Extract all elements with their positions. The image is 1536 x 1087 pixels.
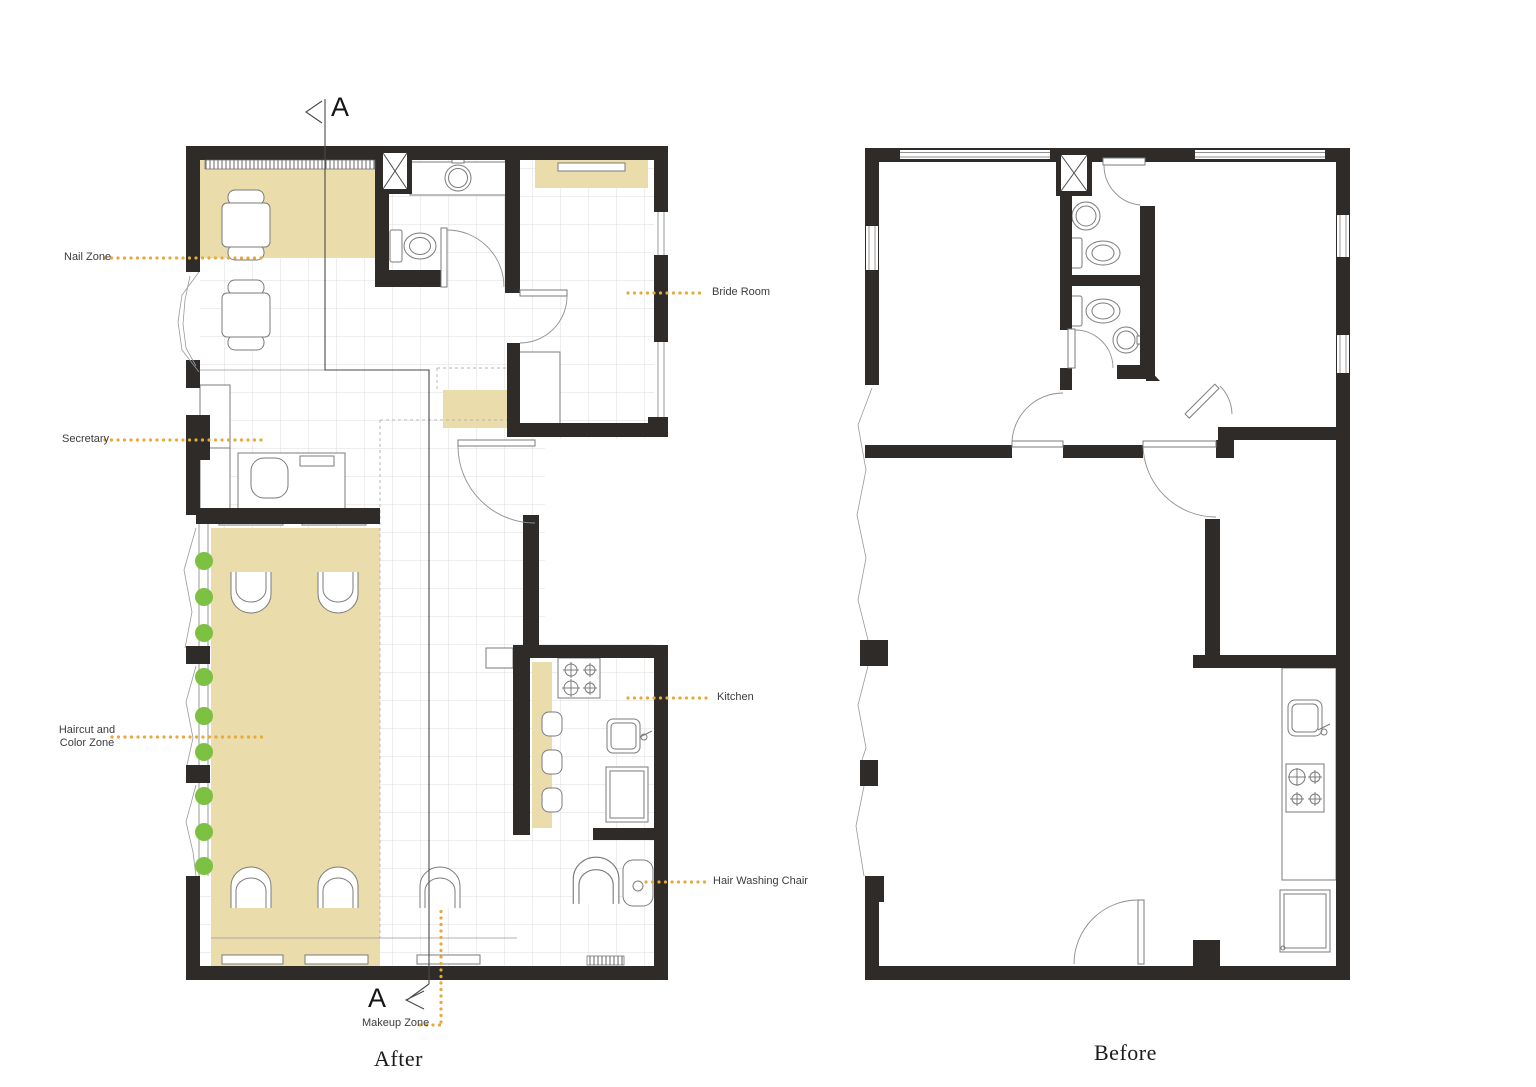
nail-table-1 [222, 190, 270, 260]
salon-chair [318, 867, 358, 908]
before-walls [860, 148, 1350, 980]
after-floor-plan [105, 99, 712, 1025]
before-sink-2 [1113, 327, 1143, 353]
before-stove [1286, 764, 1324, 812]
label-makeup-zone: Makeup Zone [362, 1017, 429, 1030]
salon-chair [318, 572, 358, 613]
salon-chair [231, 572, 271, 613]
section-marker-a-bottom: A [368, 983, 386, 1014]
bottom-entry-door [1074, 900, 1144, 964]
before-toilet-2 [1068, 296, 1120, 326]
section-marker-a-top: A [331, 92, 349, 123]
after-title: After [374, 1046, 423, 1072]
left-room-door [1012, 393, 1063, 447]
label-secretary: Secretary [62, 433, 109, 446]
label-nail-zone: Nail Zone [64, 251, 111, 264]
washing-lounge-chair [573, 857, 619, 904]
after-toilet [390, 230, 436, 262]
hall-counter [486, 648, 513, 668]
label-haircut-color-zone: Haircut and Color Zone [48, 724, 126, 750]
after-fridge [606, 767, 648, 822]
after-shaft [378, 148, 412, 194]
before-kitchen-sink [1288, 700, 1330, 736]
before-fixtures [1066, 202, 1336, 952]
label-kitchen: Kitchen [717, 691, 754, 704]
after-plants [195, 552, 213, 875]
after-bathroom-sink [410, 158, 506, 195]
living-room-door [1143, 441, 1216, 517]
right-room-door [1185, 384, 1232, 418]
window-hatch [205, 160, 375, 169]
hall-cabinet [443, 390, 512, 428]
before-title: Before [1094, 1040, 1157, 1066]
secretary-chair [251, 458, 288, 498]
label-hair-washing-chair: Hair Washing Chair [713, 875, 808, 888]
before-fridge [1280, 890, 1330, 952]
before-bay-lines [856, 388, 872, 876]
floorplan-drawing [0, 0, 1536, 1087]
bride-closet [515, 352, 560, 430]
bar-stool [542, 712, 562, 736]
salon-chair [231, 867, 271, 908]
nail-table-2 [222, 280, 270, 350]
wardrobe-rail [558, 163, 625, 171]
hair-washing-chair [623, 860, 653, 906]
bar-stool [542, 750, 562, 774]
before-shaft [1056, 150, 1092, 196]
mirror-bottom-2 [305, 955, 368, 964]
mirror-bottom-3 [417, 955, 480, 964]
window-hatch [587, 956, 624, 965]
floor-plan-canvas: Nail Zone Secretary Haircut and Color Zo… [0, 0, 1536, 1087]
bar-stool [542, 788, 562, 812]
label-bride-room: Bride Room [712, 286, 770, 299]
after-stove [558, 658, 600, 698]
before-toilet-1 [1068, 238, 1120, 268]
mirror-bottom-1 [222, 955, 283, 964]
bathroom2-door [1068, 329, 1113, 368]
after-exterior-gap [545, 439, 655, 644]
makeup-chair [420, 867, 460, 908]
bathroom1-door [1103, 158, 1145, 205]
before-floor-plan [856, 148, 1350, 980]
